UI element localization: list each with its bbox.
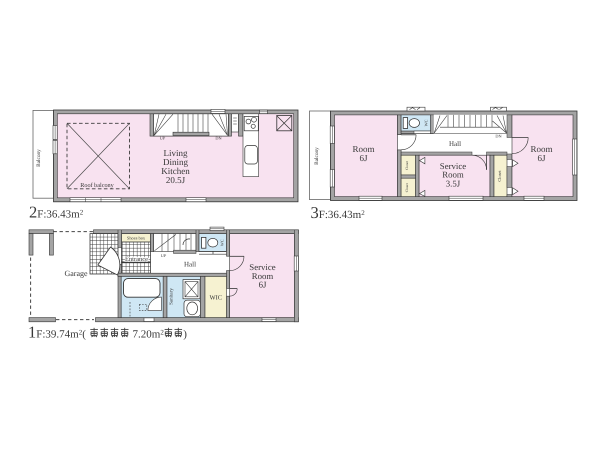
svg-text:3.5J: 3.5J <box>446 178 461 188</box>
svg-text:WC: WC <box>219 239 224 246</box>
svg-text:Shoes box: Shoes box <box>127 236 146 241</box>
svg-text:DN: DN <box>215 136 221 141</box>
svg-text:Entrance: Entrance <box>125 256 148 263</box>
svg-text:Balcony: Balcony <box>36 149 42 167</box>
svg-text:Hall: Hall <box>184 261 196 269</box>
svg-text:6J: 6J <box>537 153 546 163</box>
svg-text:Garage: Garage <box>64 269 88 278</box>
svg-text:Hall: Hall <box>449 140 461 148</box>
svg-text:DN: DN <box>495 134 501 139</box>
svg-text:): ) <box>183 328 187 340</box>
svg-text:Roof balcony: Roof balcony <box>80 182 114 189</box>
svg-text:Closet: Closet <box>405 161 409 170</box>
svg-text:WIC: WIC <box>209 294 222 301</box>
svg-text:WC: WC <box>423 119 428 126</box>
svg-text:Closet: Closet <box>405 183 409 192</box>
svg-text:Sanitary: Sanitary <box>169 288 175 305</box>
svg-text:6J: 6J <box>259 280 267 290</box>
svg-text:UP: UP <box>161 253 167 258</box>
svg-text:Balcony: Balcony <box>314 147 320 165</box>
svg-text:6J: 6J <box>359 153 368 163</box>
svg-text:20.5J: 20.5J <box>166 175 186 185</box>
svg-text:UP: UP <box>160 136 166 141</box>
svg-text:Closet: Closet <box>497 170 502 182</box>
svg-text:7.20m2: 7.20m2 <box>133 328 165 340</box>
